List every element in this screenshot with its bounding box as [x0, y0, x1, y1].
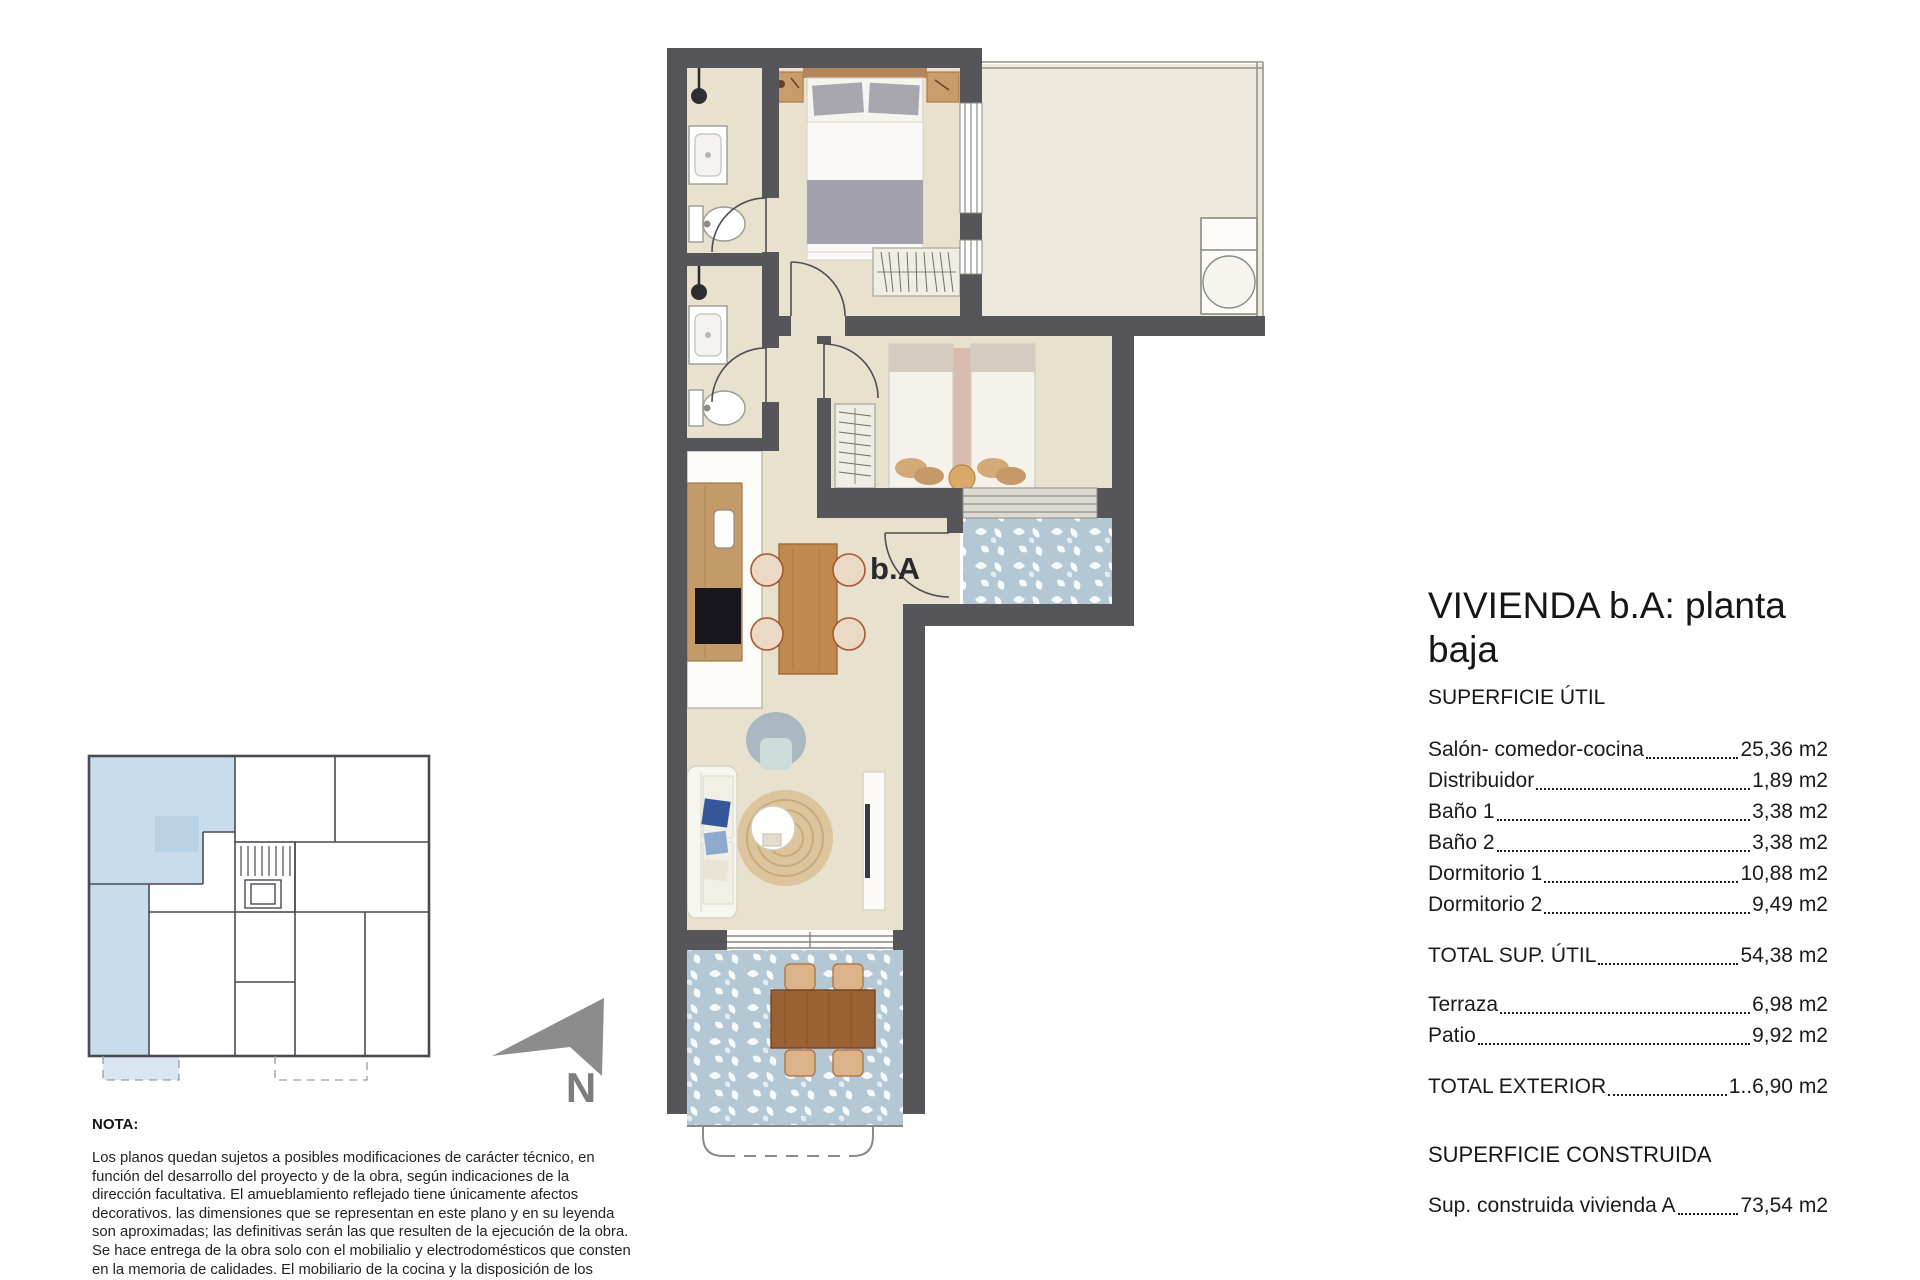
cooktop-icon	[695, 588, 741, 644]
area-row: Dormitorio 29,49 m2	[1428, 889, 1828, 920]
construida-row: Sup. construida vivienda A73,54 m2	[1428, 1190, 1828, 1221]
key-plan	[85, 752, 445, 1097]
shower-icon	[691, 284, 707, 300]
area-row: Salón- comedor-cocina25,36 m2	[1428, 734, 1828, 765]
nightstand	[927, 72, 959, 102]
entrance-label: b.A	[870, 551, 920, 586]
dotted-leader	[1646, 757, 1739, 759]
sofa	[687, 766, 737, 918]
outdoor-chair	[833, 964, 863, 990]
page-title: VIVIENDA b.A: planta baja	[1428, 584, 1828, 672]
highlighted-unit	[89, 756, 235, 1080]
terrace-window	[963, 488, 1097, 518]
dotted-leader	[1544, 881, 1738, 883]
area-row: Baño 13,38 m2	[1428, 796, 1828, 827]
area-row: Distribuidor1,89 m2	[1428, 765, 1828, 796]
bed-headboard	[803, 68, 927, 78]
nota-body: Los planos quedan sujetos a posibles mod…	[92, 1149, 632, 1280]
outdoor-chair	[785, 964, 815, 990]
superficie-construida-heading: SUPERFICIE CONSTRUIDA	[1428, 1142, 1828, 1168]
tv-icon	[865, 804, 870, 878]
main-floorplan: b.A	[667, 48, 1287, 1168]
terrace-rail	[687, 1126, 903, 1156]
outdoor-table	[771, 990, 875, 1048]
dining-table	[779, 544, 837, 674]
area-panel: VIVIENDA b.A: planta baja SUPERFICIE ÚTI…	[1428, 584, 1828, 1221]
dotted-leader	[1497, 819, 1751, 821]
bed-blanket	[807, 180, 923, 244]
nota-block: NOTA: Los planos quedan sujetos a posibl…	[92, 1116, 632, 1280]
dotted-leader	[1598, 963, 1738, 965]
north-label: N	[566, 1064, 596, 1111]
elevator-icon	[245, 880, 281, 908]
area-row: Terraza6,98 m2	[1428, 989, 1828, 1020]
pillow	[701, 798, 730, 827]
dotted-leader	[1544, 912, 1750, 914]
dotted-leader	[1500, 1012, 1750, 1014]
area-row: Dormitorio 110,88 m2	[1428, 858, 1828, 889]
washing-machine-icon	[1201, 218, 1257, 314]
stairs-icon	[241, 846, 290, 876]
total-exterior-row: TOTAL EXTERIOR1..6,90 m2	[1428, 1071, 1828, 1102]
area-row: Patio9,92 m2	[1428, 1020, 1828, 1051]
dotted-leader	[1608, 1094, 1727, 1096]
kitchen-counter	[687, 451, 762, 708]
outdoor-chair	[833, 1050, 863, 1076]
pillow	[704, 831, 729, 856]
outdoor-chair	[785, 1050, 815, 1076]
pillow	[703, 859, 729, 881]
north-indicator: N	[486, 992, 626, 1112]
superficie-util-heading: SUPERFICIE ÚTIL	[1428, 686, 1828, 710]
dotted-leader	[1536, 788, 1750, 790]
floorplan-page: b.A	[0, 0, 1920, 1280]
dotted-leader	[1678, 1213, 1739, 1215]
dotted-leader	[1497, 850, 1751, 852]
nota-heading: NOTA:	[92, 1116, 632, 1133]
util-rows: Salón- comedor-cocina25,36 m2 Distribuid…	[1428, 734, 1828, 920]
area-row: Baño 23,38 m2	[1428, 827, 1828, 858]
pouf	[949, 465, 975, 491]
kitchen-sink-icon	[714, 510, 734, 548]
shower-icon	[691, 88, 707, 104]
total-util-row: TOTAL SUP. ÚTIL54,38 m2	[1428, 940, 1828, 971]
dotted-leader	[1478, 1043, 1750, 1045]
terrace-floor	[963, 518, 1112, 604]
